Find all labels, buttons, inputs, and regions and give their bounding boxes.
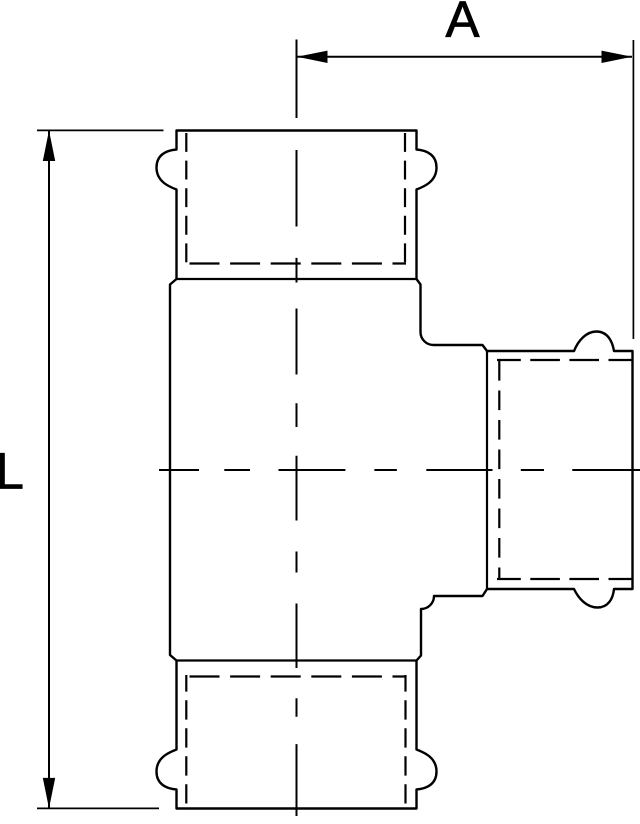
svg-text:L: L (0, 442, 24, 499)
svg-text:A: A (445, 0, 479, 48)
